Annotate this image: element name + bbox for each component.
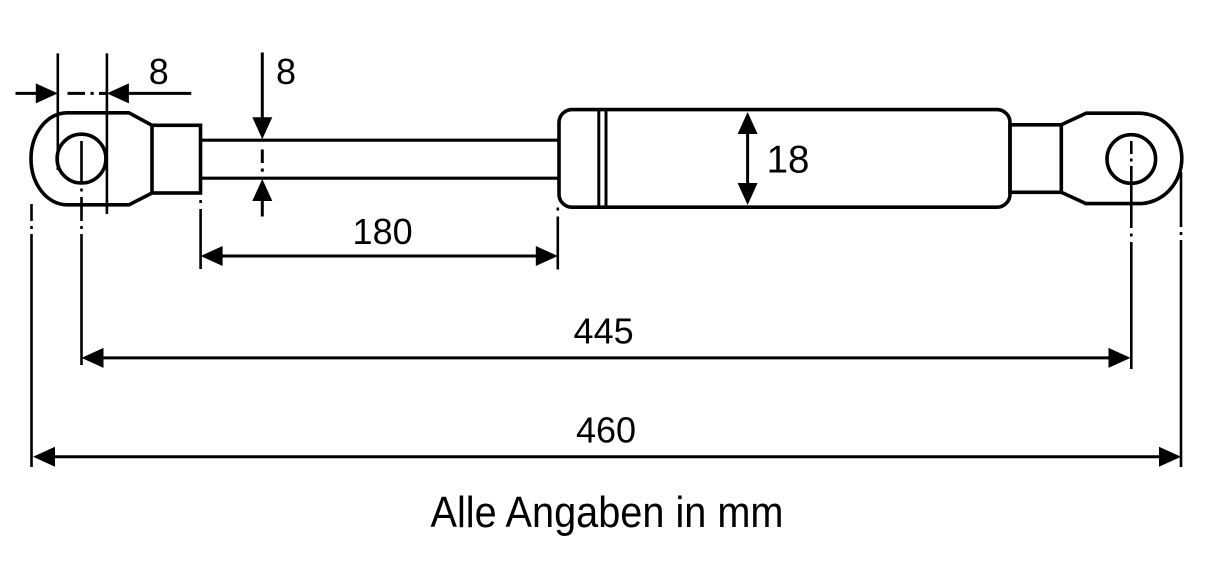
svg-text:Alle Angaben in mm: Alle Angaben in mm xyxy=(431,488,784,537)
svg-text:8: 8 xyxy=(149,51,169,92)
svg-text:18: 18 xyxy=(767,139,810,182)
svg-text:8: 8 xyxy=(276,51,296,92)
svg-text:445: 445 xyxy=(574,310,634,351)
svg-text:460: 460 xyxy=(576,410,636,451)
svg-text:180: 180 xyxy=(353,211,413,252)
